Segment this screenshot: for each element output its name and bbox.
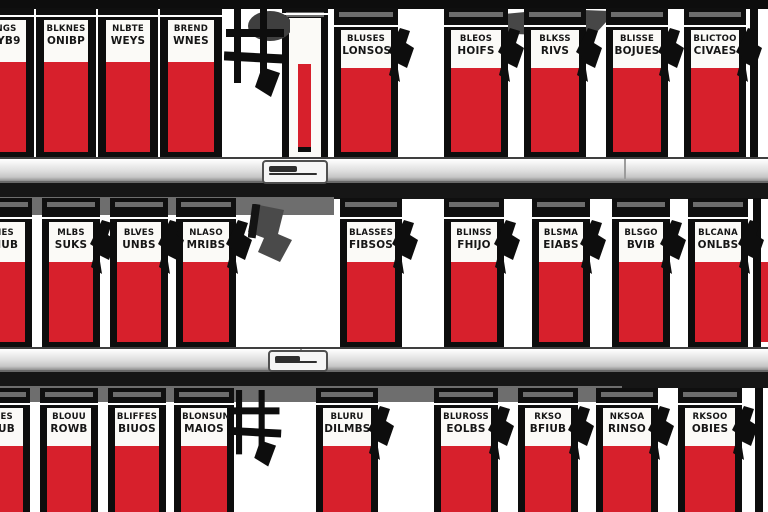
pack-cap: [176, 198, 236, 222]
product-pack: BLINSSFHIJO: [444, 198, 504, 347]
pack-label-line2: ONLBS: [696, 239, 740, 251]
pack-label: BLKNESONIBP: [44, 24, 88, 47]
product-pack: BLISSEBOJUES: [606, 8, 668, 157]
pack-label-line2: MAIOS: [182, 423, 226, 435]
pack-red-body: [685, 446, 735, 512]
price-tag-clip: [268, 350, 328, 372]
ladder-tag-icon: [224, 9, 290, 101]
pack-label: TIESNUB: [0, 412, 22, 435]
hanging-tag-icon: [576, 28, 602, 82]
pack-cap-highlight: [683, 392, 737, 397]
hanging-tag-icon: [392, 220, 418, 274]
ladder-tag-icon: [226, 390, 286, 470]
pack-label-line2: EOLBS: [442, 423, 490, 435]
pack-label: BLURUDILMBS: [324, 412, 370, 435]
pack-label-line2: ONIBP: [44, 35, 88, 47]
pack-label: BLVESUNBS: [118, 228, 160, 251]
pack-label: BLKSSRIVS: [532, 34, 578, 57]
pack-label: RKSOOOBIES: [686, 412, 734, 435]
pack-cap-highlight: [0, 392, 26, 397]
pack-cap: [596, 388, 658, 408]
pack-label: BLINSSFHIJO: [452, 228, 496, 251]
pack-red-body: [117, 262, 161, 347]
pack-label: BLEOSHOIFS: [452, 34, 500, 57]
pack-cap-highlight: [537, 202, 586, 207]
pack-red-body: [44, 62, 88, 157]
pack-label: BLSMAEIABS: [540, 228, 582, 251]
product-pack: BLIFFESBIUOS: [108, 388, 166, 512]
pack-label-line2: CIVAES: [692, 45, 738, 57]
pack-cap-highlight: [321, 392, 373, 397]
hanging-tag-icon: [732, 406, 758, 460]
pack-cap-highlight: [115, 202, 164, 207]
pack-label: BLASSESFIBSOS: [348, 228, 394, 251]
pack-label-line2: WNES: [168, 35, 214, 47]
product-pack: BLONSUNMAIOS: [174, 388, 234, 512]
product-pack: BLUSESLONSOS: [334, 8, 398, 157]
pack-cap: [0, 198, 32, 222]
pack-label-line2: SUKS: [50, 239, 92, 251]
pack-cap: [688, 198, 748, 222]
pack-cap-highlight: [113, 392, 162, 397]
pack-cap: [316, 388, 378, 408]
price-tag-clip-line: [269, 173, 317, 175]
pack-cap: [532, 198, 590, 222]
pack-red-body: [115, 446, 159, 512]
pack-right-edge: [88, 8, 96, 157]
pack-red-body: [619, 262, 663, 347]
pack-left-edge: [524, 8, 531, 157]
pack-red-body: [341, 68, 391, 157]
pack-cap: [444, 198, 504, 222]
pack-cap-highlight: [523, 392, 573, 397]
pack-label: BLOUUROWB: [48, 412, 90, 435]
pack-label-line2: RINSO: [604, 423, 650, 435]
price-tag-clip-line: [275, 361, 317, 363]
pack-right-edge: [214, 8, 222, 157]
product-pack: RKSOBFIUB: [518, 388, 578, 512]
pack-red-body: [0, 262, 25, 347]
pack-label-line2: BOJUES: [614, 45, 660, 57]
pack-red-body: [539, 262, 583, 347]
pack-label-line2: MRIBS: [184, 239, 228, 251]
pack-red-body: [323, 446, 371, 512]
pack-cap: [518, 388, 578, 408]
pack-cap: [40, 388, 98, 408]
product-pack: NLASOMRIBS: [176, 198, 236, 347]
pack-cap-highlight: [339, 12, 393, 17]
pack-left-edge: [334, 8, 341, 157]
hanging-tag-icon: [90, 220, 116, 274]
pack-right-edge: [150, 8, 158, 157]
hanging-tag-icon: [580, 220, 606, 274]
pack-left-edge: [684, 8, 691, 157]
hanging-tag-icon: [498, 28, 524, 82]
pack-cap-highlight: [617, 202, 666, 207]
pack-cap: [160, 8, 222, 20]
pack-label-line2: BIUOS: [116, 423, 158, 435]
pack-red-body: [168, 62, 214, 157]
partial-pack-red: [761, 262, 768, 342]
pack-red-body: [47, 446, 91, 512]
product-pack: TNGSWYB9: [0, 8, 34, 157]
pack-cap-highlight: [529, 12, 581, 17]
pack-label: NLBTEWEYS: [106, 24, 150, 47]
pack-cap: [678, 388, 742, 408]
pack-red-body: [347, 262, 395, 347]
pack-red-body: [613, 68, 661, 157]
pack-cap-highlight: [439, 392, 493, 397]
pack-cap: [334, 8, 398, 30]
product-pack: TIESNUB: [0, 388, 30, 512]
pack-left-edge: [606, 8, 613, 157]
pack-left-edge: [160, 8, 168, 157]
product-pack: BRENDWNES: [160, 8, 222, 157]
pack-cap: [174, 388, 234, 408]
pack-red-body: [603, 446, 651, 512]
product-pack: BLICTOOCIVAES: [684, 8, 746, 157]
pack-label: TNGSWYB9: [0, 24, 26, 47]
pack-label-line2: BFIUB: [526, 423, 570, 435]
pack-cap: [36, 8, 96, 20]
pack-label-line2: WYB9: [0, 35, 26, 47]
hanging-tag-icon: [568, 406, 594, 460]
pack-red-body: [181, 446, 227, 512]
pack-red-body: [695, 262, 741, 347]
pack-red-body: [525, 446, 571, 512]
pack-red-body: [183, 262, 229, 347]
pack-label-line2: NUB: [0, 423, 22, 435]
hanging-tag-icon: [158, 220, 184, 274]
pack-cap: [98, 8, 158, 20]
pack-label: BLONSUNMAIOS: [182, 412, 226, 435]
hanging-tag-icon: [736, 28, 762, 82]
product-pack: NLBTEWEYS: [98, 8, 158, 157]
shelf-seam: [624, 159, 626, 179]
pack-side-stripe: [298, 64, 311, 152]
pack-label-line2: EIABS: [540, 239, 582, 251]
pack-cap: [340, 198, 402, 222]
pack-label: BLCANAONLBS: [696, 228, 740, 251]
pack-left-edge: [98, 8, 106, 157]
pack-label: BLUROSSEOLBS: [442, 412, 490, 435]
pack-cap: [0, 8, 34, 20]
product-pack: BLKSSRIVS: [524, 8, 586, 157]
pack-label-line2: ROWB: [48, 423, 90, 435]
pack-label-line2: FHIJO: [452, 239, 496, 251]
shelf-rail: [0, 347, 768, 372]
pack-red-body: [0, 446, 23, 512]
pack-label: NESTIUB: [0, 228, 24, 251]
product-pack: NKSOARINSO: [596, 388, 658, 512]
hanging-tag-icon: [660, 220, 686, 274]
hanging-tag-icon: [388, 28, 414, 82]
product-pack: BLSGOBVIB: [612, 198, 670, 347]
pack-label: MLBSSUKS: [50, 228, 92, 251]
price-tag-clip-bar: [269, 166, 297, 172]
pack-left-edge: [36, 8, 44, 157]
pack-label-line2: OBIES: [686, 423, 734, 435]
product-pack: BLURUDILMBS: [316, 388, 378, 512]
hanging-tag-icon: [494, 220, 520, 274]
pack-red-body: [691, 68, 739, 157]
pack-cap-highlight: [689, 12, 741, 17]
gray-tag-icon: [248, 204, 294, 262]
product-pack: BLEOSHOIFS: [444, 8, 508, 157]
product-pack: BLVESUNBS: [110, 198, 168, 347]
pack-red-body: [0, 62, 26, 157]
product-pack: BLSMAEIABS: [532, 198, 590, 347]
pack-cap: [444, 8, 508, 30]
hanging-tag-icon: [738, 220, 764, 274]
pack-label: BLUSESLONSOS: [342, 34, 390, 57]
pack-label: BLSGOBVIB: [620, 228, 662, 251]
pack-cap: [606, 8, 668, 30]
pack-cap-highlight: [449, 202, 499, 207]
pack-cap: [524, 8, 586, 30]
pack-label: BLISSEBOJUES: [614, 34, 660, 57]
pack-label-line2: FIBSOS: [348, 239, 394, 251]
pack-red-body: [49, 262, 93, 347]
product-pack: BLASSESFIBSOS: [340, 198, 402, 347]
pack-label-line2: TIUB: [0, 239, 24, 251]
shelf-illustration: TNGSWYB9BLKNESONIBPNLBTEWEYSBRENDWNESBLU…: [0, 0, 768, 512]
pack-cap-highlight: [0, 202, 28, 207]
hanging-tag-icon: [658, 28, 684, 82]
pack-label: RKSOBFIUB: [526, 412, 570, 435]
pack-label: BLIFFESBIUOS: [116, 412, 158, 435]
pack-label-line2: UNBS: [118, 239, 160, 251]
product-pack: MLBSSUKS: [42, 198, 100, 347]
hanging-tag-icon: [488, 406, 514, 460]
pack-cap-highlight: [611, 12, 663, 17]
product-pack: BLKNESONIBP: [36, 8, 96, 157]
pack-label-line2: DILMBS: [324, 423, 370, 435]
pack-cap-highlight: [601, 392, 653, 397]
product-pack: RKSOOOBIES: [678, 388, 742, 512]
pack-red-body: [106, 62, 150, 157]
pack-label: NLASOMRIBS: [184, 228, 228, 251]
pack-red-body: [451, 68, 501, 157]
pack-cap: [108, 388, 166, 408]
pack-cap-highlight: [45, 392, 94, 397]
product-pack: NESTIUB: [0, 198, 32, 347]
pack-right-edge: [321, 8, 328, 157]
pack-cap-highlight: [449, 12, 503, 17]
pack-right-edge: [26, 8, 34, 157]
pack-label-line2: WEYS: [106, 35, 150, 47]
product-pack: BLOUUROWB: [40, 388, 98, 512]
pack-red-body: [451, 262, 497, 347]
pack-label-line2: BVIB: [620, 239, 662, 251]
pack-cap-highlight: [181, 202, 231, 207]
pack-cap: [42, 198, 100, 222]
product-pack: BLUROSSEOLBS: [434, 388, 498, 512]
pack-cap-highlight: [693, 202, 743, 207]
pack-label: BLICTOOCIVAES: [692, 34, 738, 57]
hanging-tag-icon: [368, 406, 394, 460]
hanging-tag-icon: [648, 406, 674, 460]
pack-label-line2: RIVS: [532, 45, 578, 57]
pack-label-line2: HOIFS: [452, 45, 500, 57]
pack-left-edge: [444, 8, 451, 157]
pack-cap-highlight: [286, 12, 325, 17]
pack-red-body: [531, 68, 579, 157]
shelf-rail: [0, 157, 768, 183]
pack-label-line2: LONSOS: [342, 45, 390, 57]
price-tag-clip: [262, 160, 328, 184]
pack-cap: [612, 198, 670, 222]
pack-label: NKSOARINSO: [604, 412, 650, 435]
pack-cap-highlight: [47, 202, 96, 207]
pack-red-body: [441, 446, 491, 512]
pack-cap: [0, 388, 30, 408]
pack-cap: [110, 198, 168, 222]
pack-label: BRENDWNES: [168, 24, 214, 47]
pack-cap: [434, 388, 498, 408]
pack-cap-highlight: [345, 202, 397, 207]
pack-cap: [684, 8, 746, 30]
pack-cap-highlight: [179, 392, 229, 397]
product-pack: BLCANAONLBS: [688, 198, 748, 347]
